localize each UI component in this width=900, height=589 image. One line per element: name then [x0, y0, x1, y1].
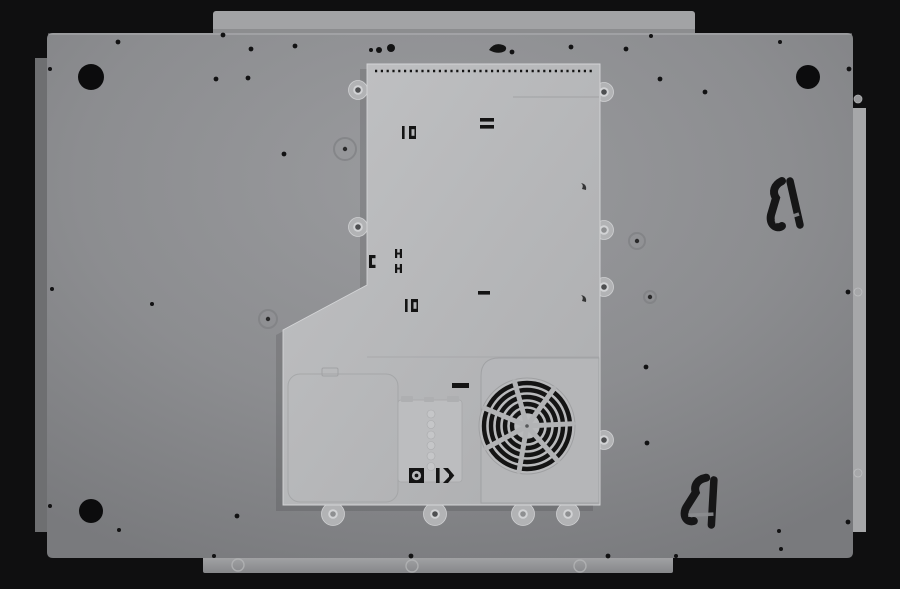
screw-dot [778, 40, 782, 44]
corner-hole [78, 64, 104, 90]
screw-dot [658, 77, 663, 82]
screw-head [330, 511, 336, 517]
screw-dot [246, 76, 251, 81]
screw-dot [376, 47, 382, 53]
emboss-bump [427, 421, 435, 429]
screw-head [355, 224, 361, 230]
screw-dot [48, 67, 52, 71]
screw-head [565, 511, 571, 517]
appliance-underside-photo [0, 0, 900, 589]
embossed-ring-center [648, 295, 652, 299]
screw-head [601, 89, 607, 95]
corner-hole [796, 65, 820, 89]
screw-dot [847, 67, 852, 72]
screw-dot [116, 40, 121, 45]
screw-dot [387, 44, 395, 52]
glass-edge-top-shadow [213, 29, 695, 33]
screw-dot [606, 554, 611, 559]
screw-dot [846, 290, 851, 295]
cover-tab [401, 396, 413, 402]
emboss-bump [427, 452, 435, 460]
screw-head [601, 227, 607, 233]
k-mark-bar [436, 468, 440, 483]
screw-head [520, 511, 526, 517]
screw-dot [777, 529, 781, 533]
screw-dot [282, 152, 287, 157]
screw-dot [409, 554, 414, 559]
screw-dot [703, 90, 708, 95]
right-flange [851, 108, 866, 532]
junction-box-cover [398, 396, 462, 482]
bracket-inner [372, 258, 376, 265]
screw-dot [645, 441, 650, 446]
embossed-ring-center [635, 239, 639, 243]
screw-dot [249, 47, 254, 52]
screw-dot [50, 287, 54, 291]
double-slot-cutout [480, 118, 494, 122]
screw-dot [510, 50, 515, 55]
flange-notch [854, 288, 862, 296]
corner-hole [79, 499, 103, 523]
fan-spoke [531, 424, 573, 426]
screw-head [355, 87, 361, 93]
screw-dot [644, 365, 649, 370]
emboss-bump [427, 410, 435, 418]
emboss-bump [427, 442, 435, 450]
embossed-ring-center [266, 317, 270, 321]
screw-dot [674, 554, 678, 558]
screw-head [601, 437, 607, 443]
emboss-bump [427, 463, 435, 471]
bracket-inner [412, 129, 415, 136]
bar-bracket-cutout [402, 126, 405, 139]
glass-edge-bottom [203, 556, 673, 573]
screw-dot [569, 45, 574, 50]
slot-cutout [452, 383, 469, 388]
screw-dot [214, 77, 219, 82]
screw-dot [293, 44, 298, 49]
screw-dot [624, 47, 629, 52]
cover-tab [424, 397, 434, 402]
bracket-inner [414, 302, 417, 309]
slot-cutout [478, 291, 490, 295]
boxed-symbol-dot [415, 474, 419, 478]
flange-notch [854, 469, 862, 477]
screw-dot [846, 520, 851, 525]
cover-tab [447, 396, 459, 402]
screw-dot [48, 504, 52, 508]
screw-dot [369, 48, 373, 52]
screw-dot [212, 554, 216, 558]
double-slot-cutout [480, 125, 494, 129]
screw-head [601, 284, 607, 290]
fan-hub-dot [525, 424, 529, 428]
bar-bracket-cutout [405, 299, 408, 312]
screw-head [432, 511, 438, 517]
cooling-fan-grille [479, 378, 575, 474]
embossed-ring-center [343, 147, 347, 151]
screw-dot [221, 33, 226, 38]
screw-dot [117, 528, 121, 532]
screw-dot [779, 547, 783, 551]
screw-dot [649, 34, 653, 38]
emboss-bump [427, 431, 435, 439]
screw-dot [150, 302, 154, 306]
scene-canvas [0, 0, 900, 589]
flange-notch [854, 95, 862, 103]
screw-dot [235, 514, 240, 519]
